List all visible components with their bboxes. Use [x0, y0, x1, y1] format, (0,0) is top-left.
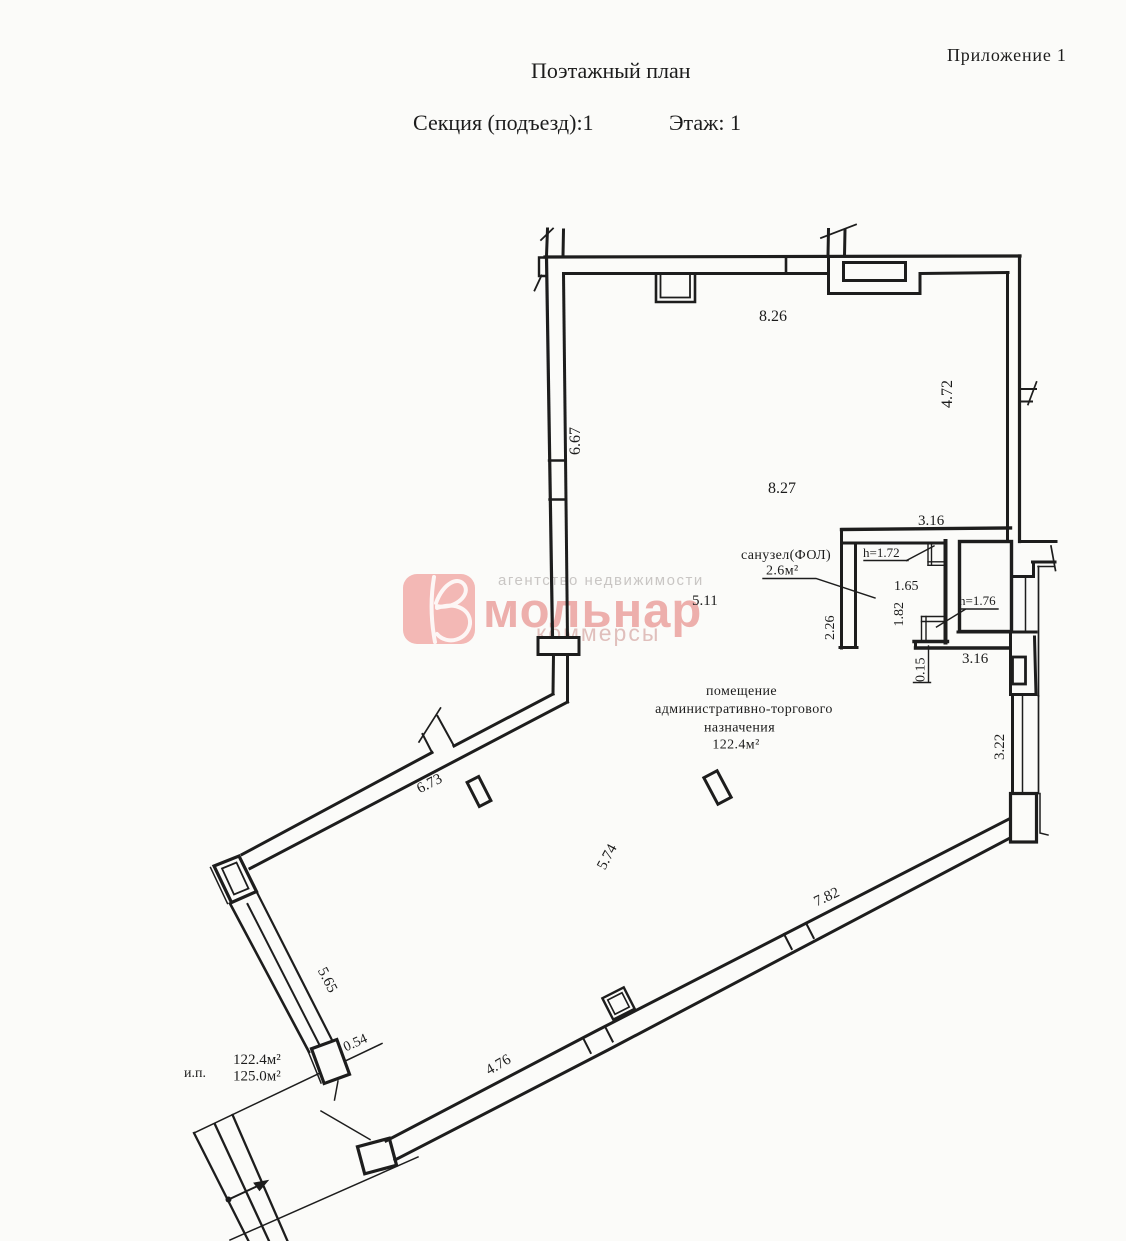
svg-text:4.72: 4.72	[939, 380, 956, 408]
svg-text:122.4м²: 122.4м²	[233, 1052, 281, 1068]
svg-text:2.6м²: 2.6м²	[766, 564, 799, 579]
svg-text:3.16: 3.16	[962, 651, 989, 667]
svg-text:Поэтажный план: Поэтажный план	[531, 58, 691, 83]
svg-text:1.82: 1.82	[892, 602, 907, 627]
svg-text:122.4м²: 122.4м²	[712, 738, 759, 753]
svg-text:h=1.72: h=1.72	[863, 545, 900, 560]
svg-text:назначения: назначения	[704, 721, 775, 736]
svg-text:1.65: 1.65	[894, 579, 919, 594]
svg-text:0.15: 0.15	[914, 658, 929, 683]
svg-text:8.27: 8.27	[768, 480, 796, 497]
svg-text:3.22: 3.22	[992, 734, 1008, 760]
svg-text:Приложение 1: Приложение 1	[947, 45, 1067, 65]
svg-text:5.11: 5.11	[692, 593, 718, 609]
svg-text:3.16: 3.16	[918, 513, 945, 529]
svg-text:h=1.76: h=1.76	[959, 593, 996, 608]
svg-text:санузел(ФОЛ): санузел(ФОЛ)	[741, 548, 831, 563]
svg-text:Этаж: 1: Этаж: 1	[669, 110, 741, 135]
svg-text:8.26: 8.26	[759, 308, 787, 325]
svg-text:125.0м²: 125.0м²	[233, 1069, 281, 1085]
svg-text:6.67: 6.67	[567, 427, 584, 455]
svg-text:помещение: помещение	[706, 684, 777, 699]
svg-text:и.п.: и.п.	[184, 1066, 206, 1081]
svg-text:Секция (подъезд):1: Секция (подъезд):1	[413, 110, 594, 135]
svg-text:2.26: 2.26	[823, 616, 838, 641]
svg-text:административно-торгового: административно-торгового	[655, 702, 833, 717]
